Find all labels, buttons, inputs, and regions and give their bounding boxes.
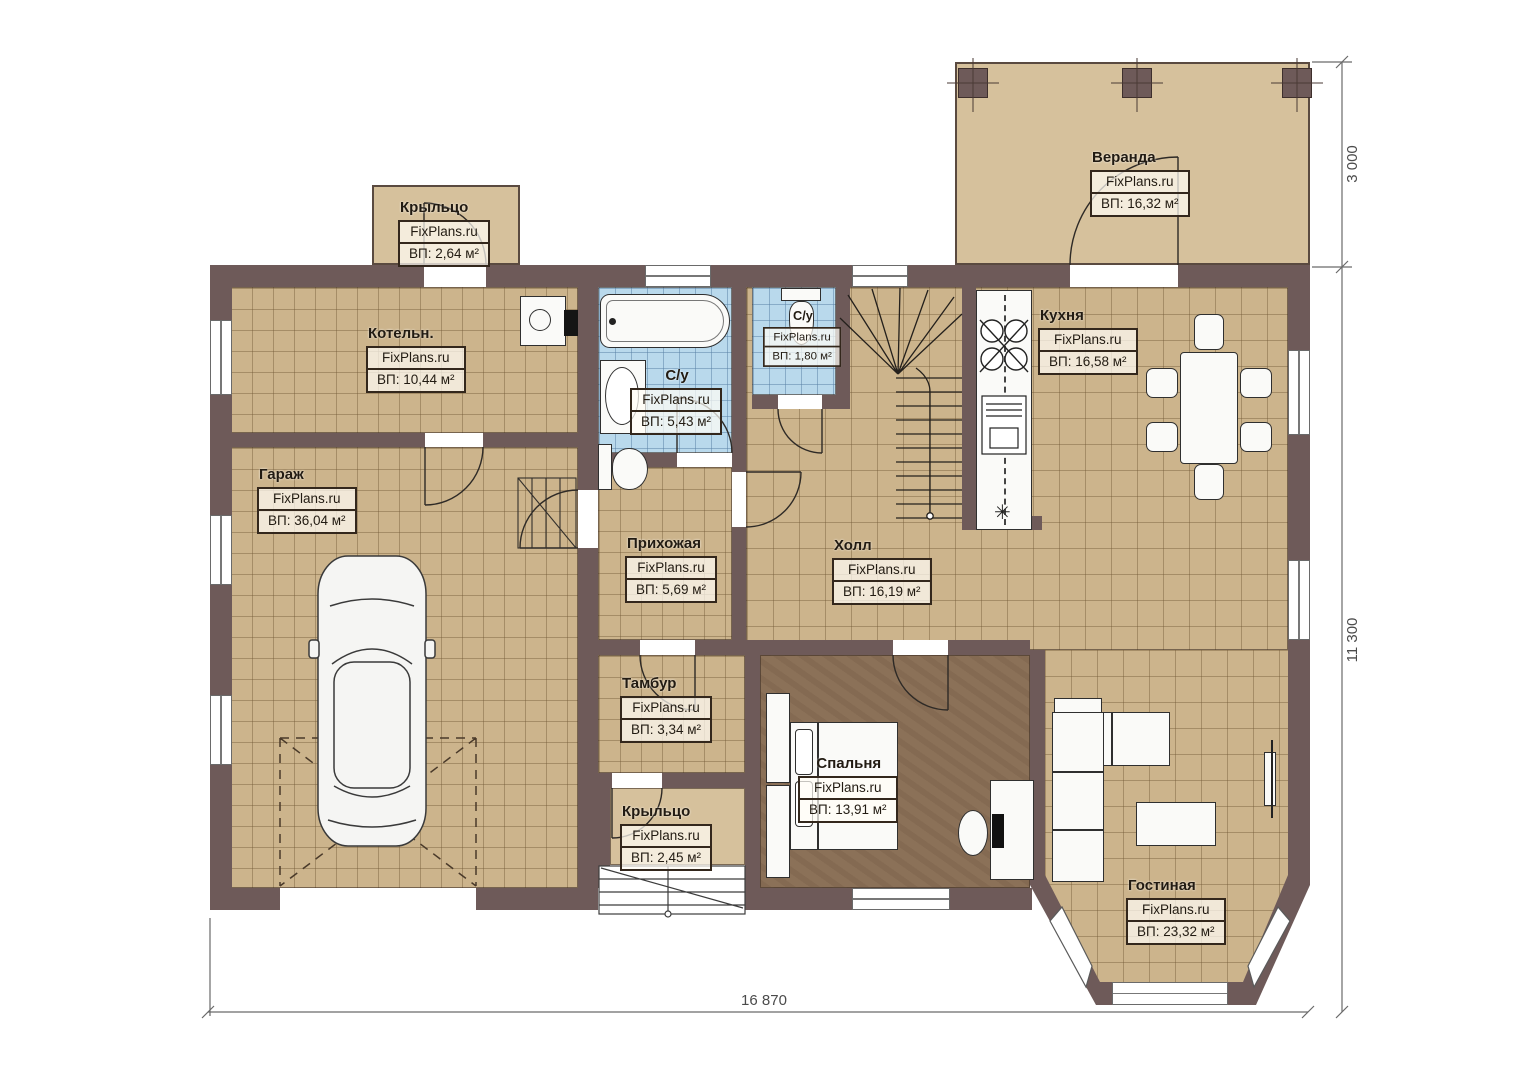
room-label-wc: С/у FixPlans.ru ВП: 1,80 м² (763, 310, 841, 367)
watermark-text: FixPlans.ru (632, 390, 720, 411)
room-label-vestibule: Тамбур FixPlans.ru ВП: 3,34 м² (620, 676, 712, 743)
door-opening (424, 265, 486, 287)
watermark-text: FixPlans.ru (765, 328, 840, 346)
room-area: ВП: 16,58 м² (1040, 350, 1136, 373)
dim-right-upper: 3 000 (1344, 124, 1364, 204)
veranda-post (1122, 68, 1152, 98)
room-name: Крыльцо (622, 804, 712, 821)
door-opening (578, 490, 598, 548)
room-info-box: FixPlans.ru ВП: 16,58 м² (1038, 328, 1138, 376)
watermark-text: FixPlans.ru (400, 222, 488, 243)
room-name: Крыльцо (400, 200, 490, 217)
toilet-tank (598, 444, 612, 490)
window (645, 265, 711, 287)
watermark-text: FixPlans.ru (1128, 900, 1224, 921)
room-label-porch-top: Крыльцо FixPlans.ru ВП: 2,64 м² (398, 200, 490, 267)
veranda-post (958, 68, 988, 98)
room-name: Спальня (800, 756, 898, 773)
toilet-bowl (612, 448, 648, 490)
room-label-bedroom: Спальня FixPlans.ru ВП: 13,91 м² (798, 756, 898, 823)
chair (1194, 314, 1224, 350)
chair (1240, 422, 1272, 452)
room-area: ВП: 2,45 м² (622, 846, 710, 869)
bathtub-inner (606, 300, 724, 342)
sofa-cushion-line (1111, 713, 1113, 765)
wall (732, 640, 1030, 655)
room-name: Котельн. (368, 326, 466, 343)
room-area: ВП: 36,04 м² (259, 509, 355, 532)
watermark-text: FixPlans.ru (800, 778, 896, 799)
room-area: ВП: 5,69 м² (627, 578, 715, 601)
coffee-table (1136, 802, 1216, 846)
room-area: ВП: 23,32 м² (1128, 920, 1224, 943)
room-label-boiler: Котельн. FixPlans.ru ВП: 10,44 м² (366, 326, 466, 393)
room-label-porch-bottom: Крыльцо FixPlans.ru ВП: 2,45 м² (620, 804, 712, 871)
door-opening (677, 453, 732, 467)
watermark-text: FixPlans.ru (622, 826, 710, 847)
door-opening (425, 433, 483, 447)
room-info-box: FixPlans.ru ВП: 13,91 м² (798, 776, 898, 824)
room-name: Прихожая (627, 536, 717, 553)
floor-plan: ✳ (0, 0, 1528, 1080)
wall (745, 655, 760, 888)
wall (595, 788, 610, 888)
room-name: Холл (834, 538, 932, 555)
room-info-box: FixPlans.ru ВП: 2,64 м² (398, 220, 490, 268)
room-name: Гараж (259, 467, 357, 484)
wall (962, 285, 976, 530)
dim-bottom: 16 870 (704, 992, 824, 1009)
monitor (992, 814, 1004, 848)
fridge-icon: ✳ (994, 500, 1011, 525)
sofa-cushion-line (1053, 771, 1103, 773)
room-info-box: FixPlans.ru ВП: 3,34 м² (620, 696, 712, 744)
faucet (609, 318, 616, 325)
window (852, 888, 950, 910)
room-info-box: FixPlans.ru ВП: 16,19 м² (832, 558, 932, 606)
door-opening (1070, 265, 1178, 287)
toilet-tank (781, 288, 821, 301)
room-info-box: FixPlans.ru ВП: 36,04 м² (257, 487, 357, 535)
sofa-cushion-line (1053, 829, 1103, 831)
window (1288, 560, 1310, 640)
sofa-vertical (1052, 712, 1104, 882)
room-area: ВП: 16,32 м² (1092, 192, 1188, 215)
watermark-text: FixPlans.ru (622, 698, 710, 719)
watermark-text: FixPlans.ru (1092, 172, 1188, 193)
wall (230, 433, 578, 447)
wardrobe (766, 785, 790, 878)
chair (1240, 368, 1272, 398)
room-label-veranda: Веранда FixPlans.ru ВП: 16,32 м² (1090, 150, 1190, 217)
window (210, 515, 232, 585)
room-name: Гостиная (1128, 878, 1226, 895)
watermark-text: FixPlans.ru (1040, 330, 1136, 351)
boiler-unit (564, 310, 578, 336)
washing-machine (520, 296, 566, 346)
room-name: Тамбур (622, 676, 712, 693)
room-label-living: Гостиная FixPlans.ru ВП: 23,32 м² (1126, 878, 1226, 945)
room-name: Кухня (1040, 308, 1138, 325)
room-label-hallway: Прихожая FixPlans.ru ВП: 5,69 м² (625, 536, 717, 603)
kitchen-counter (976, 290, 1032, 530)
room-info-box: FixPlans.ru ВП: 16,32 м² (1090, 170, 1190, 218)
room-area: ВП: 16,19 м² (834, 580, 930, 603)
window (210, 320, 232, 395)
dining-table (1180, 352, 1238, 464)
chair (1146, 368, 1178, 398)
chair (1194, 464, 1224, 500)
window (1112, 982, 1228, 1005)
counter-divider (1004, 295, 1006, 525)
room-area: ВП: 5,43 м² (632, 410, 720, 433)
room-info-box: FixPlans.ru ВП: 5,69 м² (625, 556, 717, 604)
room-info-box: FixPlans.ru ВП: 23,32 м² (1126, 898, 1226, 946)
room-area: ВП: 2,64 м² (400, 242, 488, 265)
watermark-text: FixPlans.ru (368, 348, 464, 369)
room-name: С/у (632, 368, 722, 385)
room-info-box: FixPlans.ru ВП: 1,80 м² (763, 327, 841, 368)
chair (1146, 422, 1178, 452)
door-opening (778, 395, 822, 409)
room-label-kitchen: Кухня FixPlans.ru ВП: 16,58 м² (1038, 308, 1138, 375)
room-label-garage: Гараж FixPlans.ru ВП: 36,04 м² (257, 467, 357, 534)
tv (1264, 752, 1276, 806)
room-info-box: FixPlans.ru ВП: 10,44 м² (366, 346, 466, 394)
room-info-box: FixPlans.ru ВП: 2,45 м² (620, 824, 712, 872)
bathtub (600, 294, 730, 348)
door-opening (893, 640, 948, 655)
room-area: ВП: 10,44 м² (368, 368, 464, 391)
watermark-text: FixPlans.ru (627, 558, 715, 579)
watermark-text: FixPlans.ru (834, 560, 930, 581)
window (1288, 350, 1310, 435)
watermark-text: FixPlans.ru (259, 489, 355, 510)
window (852, 265, 908, 287)
porch-steps (599, 866, 745, 917)
room-label-bathroom: С/у FixPlans.ru ВП: 5,43 м² (630, 368, 722, 435)
room-name: Веранда (1092, 150, 1190, 167)
wardrobe (766, 693, 790, 783)
garage-door-opening (280, 888, 476, 910)
room-name: С/у (765, 310, 842, 324)
wall (732, 285, 746, 640)
room-area: ВП: 1,80 м² (765, 346, 840, 365)
room-info-box: FixPlans.ru ВП: 5,43 м² (630, 388, 722, 436)
room-label-hall: Холл FixPlans.ru ВП: 16,19 м² (832, 538, 932, 605)
room-area: ВП: 13,91 м² (800, 798, 896, 821)
dim-right-lower: 11 300 (1344, 600, 1364, 680)
veranda-post (1282, 68, 1312, 98)
door-opening (732, 472, 746, 527)
room-area: ВП: 3,34 м² (622, 718, 710, 741)
door-opening (612, 773, 662, 788)
door-opening (640, 640, 695, 655)
window (210, 695, 232, 765)
washer-door (529, 309, 551, 331)
desk-chair (958, 810, 988, 856)
